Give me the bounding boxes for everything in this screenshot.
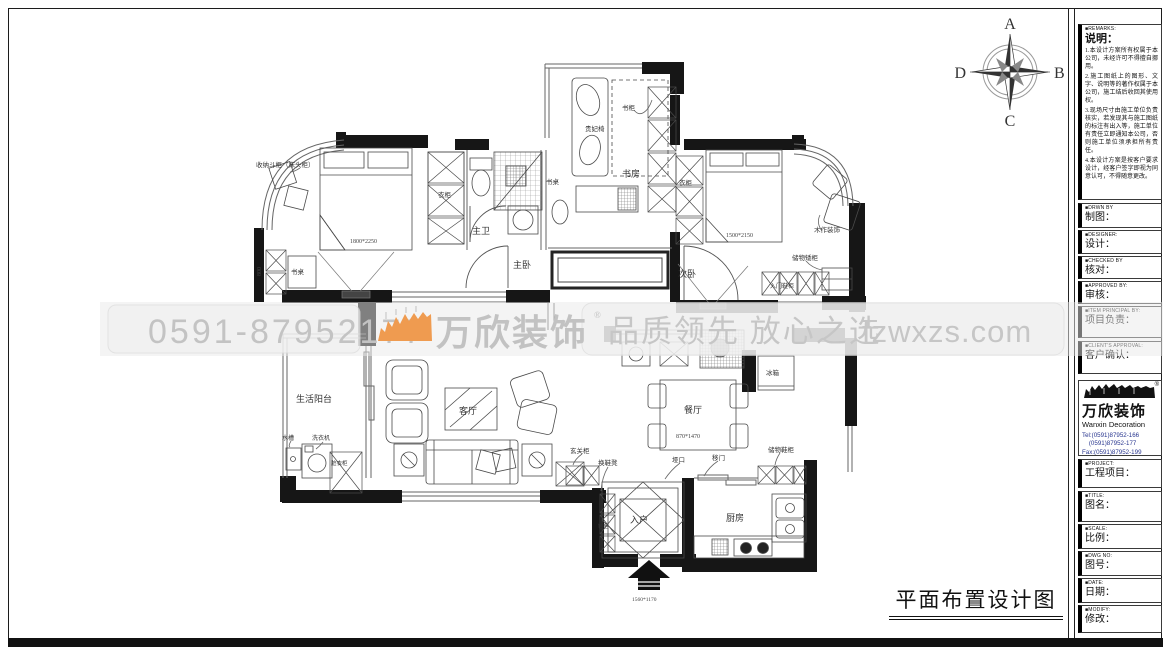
drawing-title-text: 平面布置设计图: [896, 588, 1057, 612]
remarks-label-en: ■REMARKS:: [1085, 26, 1158, 33]
scale-label-en: ■SCALE:: [1085, 526, 1158, 533]
company-contacts: Tel:(0591)87952-166 (0591)87952-177 Fax:…: [1082, 432, 1158, 456]
remarks-item: 2.施工图纸上的图形、文字、说明等的著作权属于本公司，施工结后收回其使用权。: [1085, 73, 1158, 105]
tel-2: (0591)87952-177: [1082, 440, 1136, 447]
principal-label-cn: 项目负责：: [1085, 315, 1158, 327]
approved-by-label-cn: 审核：: [1085, 290, 1158, 302]
title-box: ■TITLE: 图名：: [1078, 491, 1162, 522]
principal-label-en: ■ITEM PRINCIPAL BY:: [1085, 308, 1158, 315]
dwg-no-box: ■DWG NO: 图号：: [1078, 551, 1162, 576]
scale-label-cn: 比例：: [1085, 533, 1158, 545]
titleblock-divider: [1068, 8, 1075, 638]
remarks-label-cn: 说明：: [1085, 33, 1158, 45]
drawing-sheet: ■REMARKS: 说明： 1.本设计方案所有权属于本公司，未经许可不得擅自挪用…: [0, 0, 1171, 654]
client-approval-box: ■CLIENT'S APPROVAL: 客户确认：: [1078, 341, 1162, 374]
client-approval-label-en: ■CLIENT'S APPROVAL:: [1085, 343, 1158, 350]
drawn-by-label-cn: 制图：: [1085, 212, 1158, 224]
drawn-by-label-en: ■DRWN BY: [1085, 205, 1158, 212]
title-label-cn: 图名：: [1085, 500, 1158, 512]
checked-by-box: ■CHECKED BY 核对：: [1078, 256, 1162, 279]
date-box: ■DATE: 日期：: [1078, 578, 1162, 603]
tel-1: Tel:(0591)87952-166: [1082, 432, 1139, 439]
registered-mark: ®: [1155, 382, 1159, 388]
modify-label-en: ■MODIFY:: [1085, 607, 1158, 614]
client-approval-label-cn: 客户确认：: [1085, 350, 1158, 362]
title-rule-1: [889, 616, 1063, 617]
principal-box: ■ITEM PRINCIPAL BY: 项目负责：: [1078, 306, 1162, 338]
designer-box: ■DESIGNER: 设计：: [1078, 230, 1162, 254]
project-label-cn: 工程项目：: [1085, 468, 1158, 480]
approved-by-label-en: ■APPROVED BY:: [1085, 283, 1158, 290]
company-name: 万欣装饰: [1082, 404, 1158, 420]
checked-by-label-cn: 核对：: [1085, 265, 1158, 277]
dwg-no-label-en: ■DWG NO:: [1085, 553, 1158, 560]
sheet-bottom-bar: [8, 638, 1163, 647]
fax: Fax:(0591)87952-199: [1082, 449, 1142, 456]
designer-label-en: ■DESIGNER:: [1085, 232, 1158, 239]
brand-swoosh-icon: [1082, 383, 1158, 399]
dwg-no-label-cn: 图号：: [1085, 560, 1158, 572]
date-label-cn: 日期：: [1085, 587, 1158, 599]
modify-label-cn: 修改：: [1085, 614, 1158, 626]
date-label-en: ■DATE:: [1085, 580, 1158, 587]
project-label-en: ■PROJECT:: [1085, 461, 1158, 468]
title-rule-2: [889, 619, 1063, 620]
modify-box: ■MODIFY: 修改：: [1078, 605, 1162, 633]
designer-label-cn: 设计：: [1085, 239, 1158, 251]
remarks-item: 3.现场尺寸由施工单位负责核实，若发现其与施工图纸的标注有出入等，施工单位有责任…: [1085, 107, 1158, 155]
title-label-en: ■TITLE:: [1085, 493, 1158, 500]
company-name-en: Wanxin Decoration: [1082, 420, 1158, 429]
remarks-item: 4.本设计方案是按客户要求设计，经客户签字即视为同意认可，不得随意更改。: [1085, 157, 1158, 181]
scale-box: ■SCALE: 比例：: [1078, 524, 1162, 549]
sheet-border: [8, 8, 1162, 640]
drawing-title: 平面布置设计图: [889, 584, 1063, 620]
approved-by-box: ■APPROVED BY: 审核：: [1078, 281, 1162, 304]
checked-by-label-en: ■CHECKED BY: [1085, 258, 1158, 265]
remarks-item: 1.本设计方案所有权属于本公司，未经许可不得擅自挪用。: [1085, 47, 1158, 71]
remarks-box: ■REMARKS: 说明： 1.本设计方案所有权属于本公司，未经许可不得擅自挪用…: [1078, 24, 1162, 200]
company-logo-box: ® 万欣装饰 Wanxin Decoration Tel:(0591)87952…: [1078, 380, 1162, 456]
drawn-by-box: ■DRWN BY 制图：: [1078, 203, 1162, 228]
project-box: ■PROJECT: 工程项目：: [1078, 459, 1162, 488]
